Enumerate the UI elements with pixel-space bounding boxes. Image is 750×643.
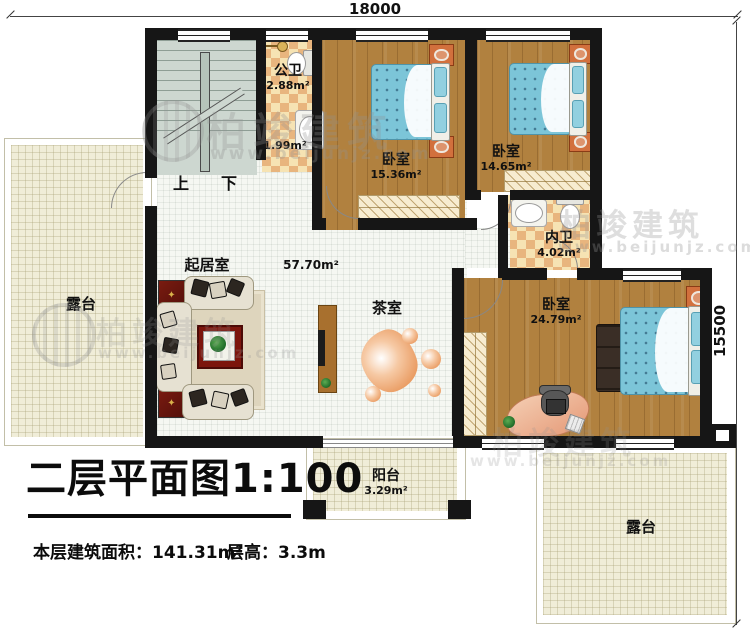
wall-master-west (452, 280, 464, 436)
sink-icon (515, 203, 543, 223)
room-label-living-room: 起居室 (184, 257, 229, 274)
window (178, 29, 230, 42)
wall-bedroom1-bottom (358, 218, 477, 230)
room-label-balcony: 阳台 3.29m² (364, 469, 407, 497)
dimension-right-value: 15500 (711, 301, 729, 361)
decor-stone (428, 384, 441, 397)
room-label-master-bedroom: 卧室 24.79m² (530, 298, 581, 326)
floor-plan-canvas: 18000 15500 (0, 0, 750, 643)
dimension-tick-icon (6, 10, 14, 18)
wall-bedroom1-west (312, 28, 322, 230)
room-label-tea-room: 茶室 (372, 300, 402, 317)
pillow (572, 100, 584, 128)
window (356, 29, 428, 42)
corner-pillar-inner (716, 430, 729, 441)
floor-height-value: 3.3m (278, 543, 326, 563)
wall-left-lower (145, 206, 157, 448)
window (266, 29, 308, 42)
bed-blanket (541, 64, 569, 132)
watermark-logo-icon (32, 303, 96, 367)
stairs-down-label: 下 (221, 170, 237, 194)
sofa-cushion (160, 363, 177, 380)
floor-area-label: 本层建筑面积： (33, 543, 152, 563)
sofa-cushion (209, 281, 228, 300)
dimension-line-right (736, 22, 737, 625)
room-label-bedroom2: 卧室 14.65m² (480, 145, 531, 173)
plant-icon (210, 336, 226, 352)
decor-stone (365, 386, 381, 402)
dimension-top-value: 18000 (340, 0, 410, 18)
wardrobe (358, 195, 460, 219)
tv-icon (318, 330, 325, 366)
floor-area-info: 本层建筑面积：141.31m² (33, 538, 243, 563)
wall-bedroom2-bottom (465, 190, 481, 200)
wall-lamp-icon (277, 41, 288, 52)
nightstand (569, 44, 592, 64)
room-label-public-bath: 公卫 2.88m² (266, 64, 309, 92)
room-label-terrace-right: 露台 (626, 519, 656, 536)
toilet-icon (560, 204, 580, 229)
title-underline (28, 514, 291, 518)
wall-master-north (452, 268, 464, 280)
room-area-living-room: 57.70m² (283, 259, 339, 272)
bed-blanket (655, 308, 688, 392)
cabinet-ornament-icon: ✦ (167, 398, 175, 409)
wall-master-north (577, 268, 602, 280)
window (482, 437, 544, 450)
wall-bedroom-divider (465, 28, 477, 193)
wardrobe (463, 332, 487, 436)
plant-icon (503, 416, 515, 428)
balcony-pillar (448, 500, 471, 519)
sofa-cushion (162, 337, 179, 354)
laptop-icon (546, 399, 566, 414)
pillow (434, 67, 447, 97)
plan-title: 二层平面图1:100 (26, 446, 363, 504)
decor-stone (402, 328, 418, 344)
room-label-bedroom1: 卧室 15.36m² (370, 153, 421, 181)
side-cabinet: ✦ (158, 388, 185, 418)
cabinet-ornament-icon: ✦ (167, 290, 175, 301)
stairs-up-label: 上 (173, 170, 189, 194)
wall-bedroom1-bottom (312, 218, 326, 230)
pillow (572, 66, 584, 94)
sofa-cushion (211, 391, 230, 410)
window (486, 29, 570, 42)
wardrobe (504, 170, 592, 192)
wall-innerbath-west (498, 195, 508, 278)
wall-master-north (502, 268, 547, 280)
room-label-wash-nook: 1.99m² (263, 140, 306, 152)
floor-height-label: 层高： (227, 543, 278, 563)
floor-height-info: 层高：3.3m (227, 538, 326, 563)
decor-stone (421, 349, 441, 369)
window (616, 437, 674, 450)
pillow (434, 103, 447, 133)
wall-bedroom2-bottom (510, 190, 602, 200)
window (623, 269, 681, 282)
wall-right-upper (590, 28, 602, 280)
watermark-logo-icon (142, 100, 204, 162)
bed-blanket (404, 65, 433, 137)
room-label-inner-bath: 内卫 4.02m² (537, 231, 580, 259)
plant-icon (321, 378, 331, 388)
